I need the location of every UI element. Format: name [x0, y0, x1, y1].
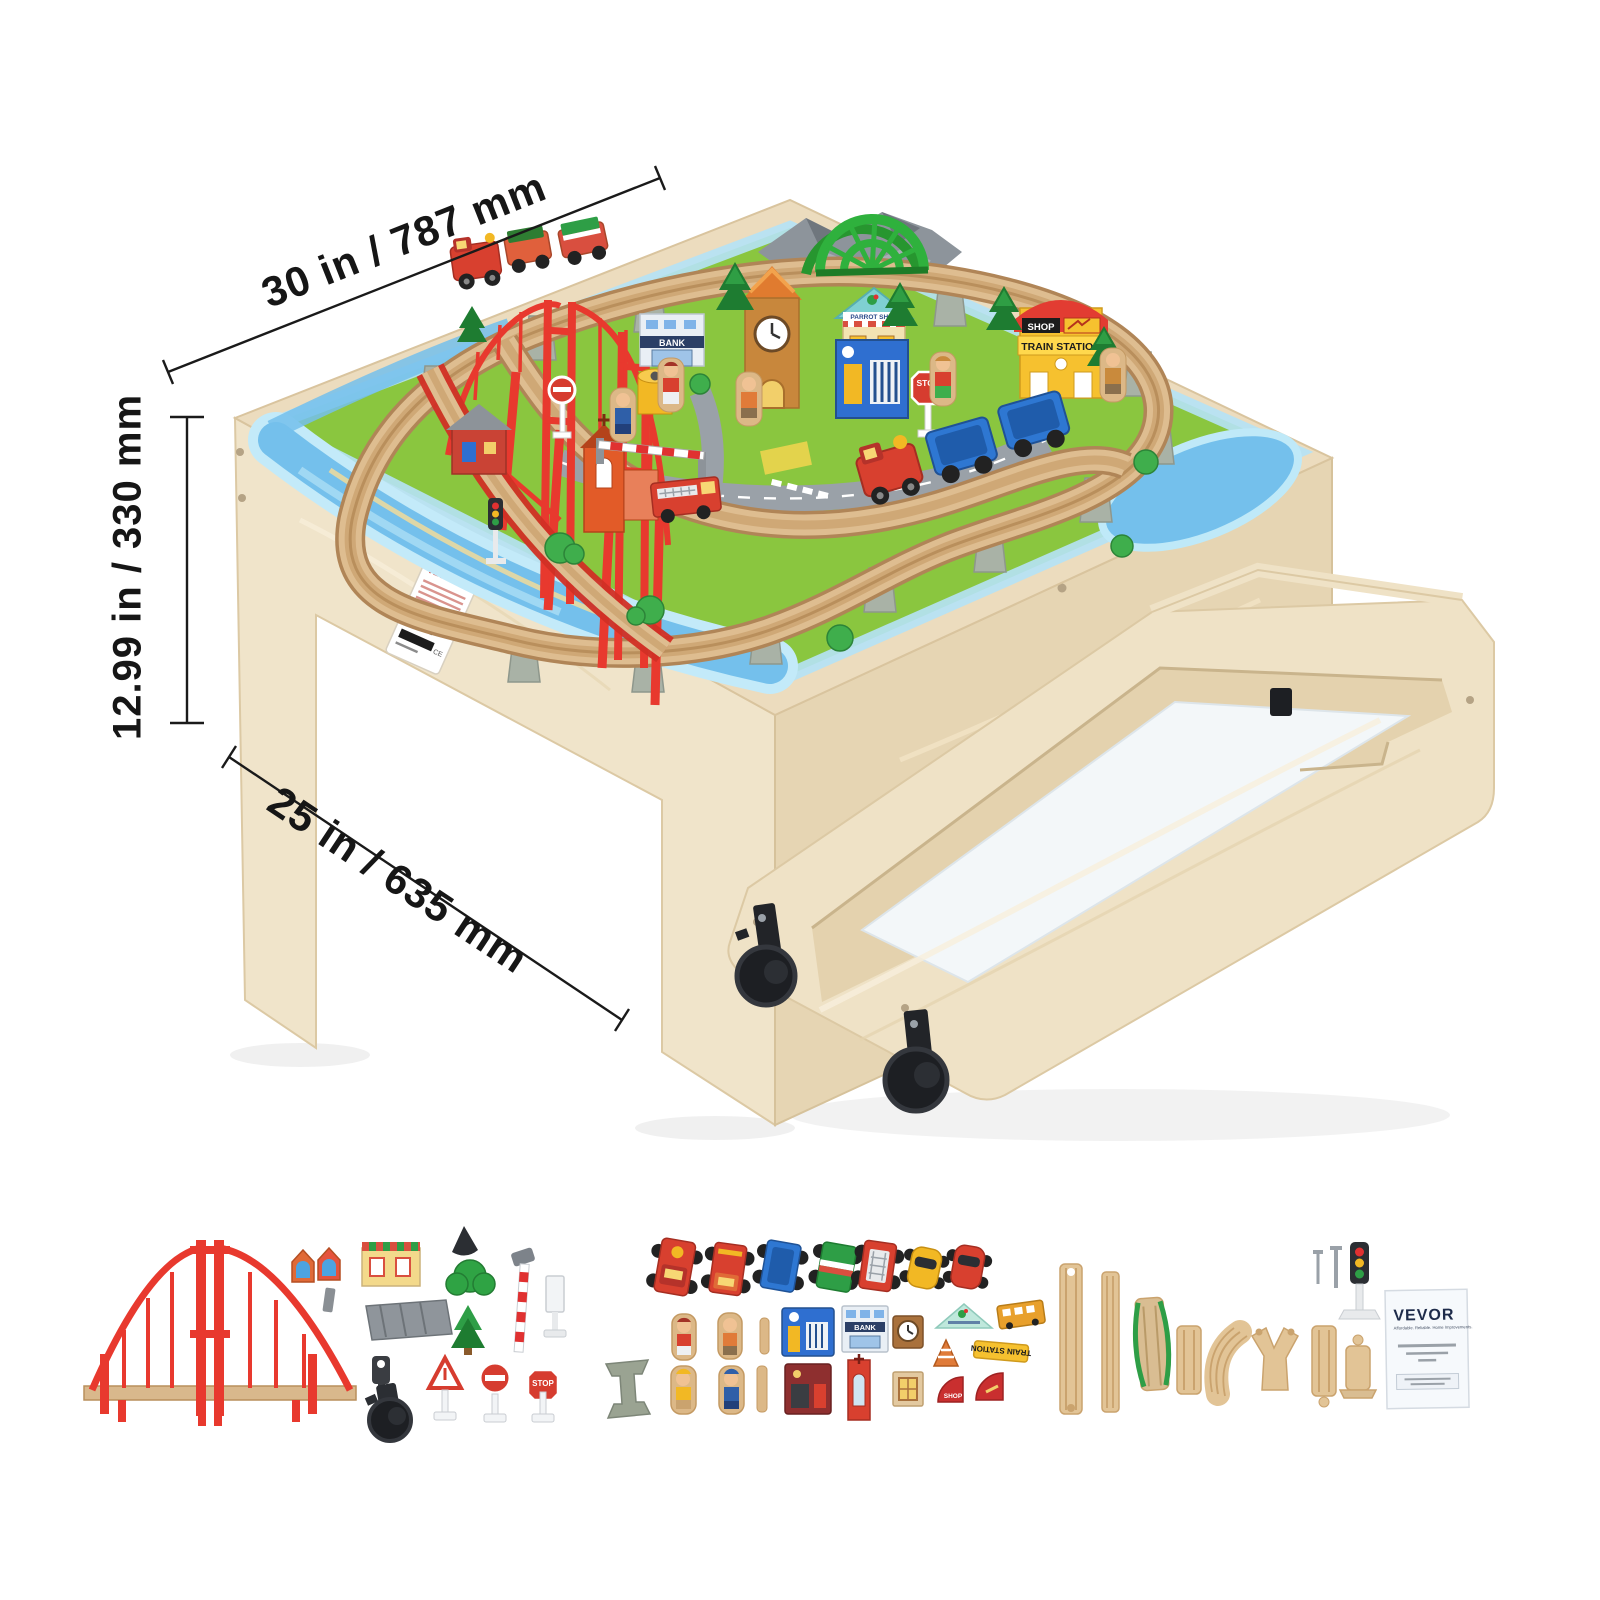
- accessory-parrot-shop-sign: [936, 1304, 992, 1328]
- accessory-church-tile: [848, 1354, 870, 1420]
- accessory-wood-peg: [757, 1366, 767, 1412]
- bank-text: BANK: [659, 338, 685, 348]
- accessory-trestle: [606, 1360, 650, 1418]
- accessory-pine-tree: [451, 1305, 485, 1355]
- accessory-y-switch-track: [1252, 1328, 1298, 1390]
- accessory-traffic-cone: [934, 1340, 958, 1366]
- wagon-orange: [503, 224, 554, 274]
- accessory-figure-man: [718, 1313, 742, 1359]
- accessory-road-sign-white: [544, 1276, 566, 1337]
- accessory-police-station-tile: [782, 1308, 834, 1356]
- accessory-figure-woman: [672, 1314, 696, 1360]
- height-dimension-label: 12.99 in / 330 mm: [106, 394, 151, 740]
- accessory-ramp-track: [1340, 1335, 1376, 1398]
- accessory-curved-track: [1210, 1328, 1247, 1396]
- accessory-straight-tracks: [1060, 1264, 1119, 1414]
- accessory-platform: [366, 1300, 452, 1340]
- accessory-fire-truck: [850, 1239, 906, 1293]
- screw: [238, 494, 246, 502]
- accessory-wood-peg: [760, 1318, 769, 1354]
- accessory-stop-text: STOP: [532, 1379, 554, 1388]
- accessory-instruction-manual: VEVOR Affordable. Reliable. Home Improve…: [1385, 1289, 1474, 1408]
- product-dimension-image: VEVOR CE: [0, 0, 1600, 1600]
- accessory-red-car: [942, 1242, 995, 1291]
- accessory-clock-tile: [893, 1316, 923, 1348]
- accessory-window-tile: [893, 1372, 923, 1406]
- accessory-school-bus-tile: [997, 1300, 1046, 1331]
- accessory-stop-sign: STOP: [528, 1370, 558, 1422]
- accessory-warning-sign: [429, 1358, 461, 1420]
- accessory-no-entry-sign: [480, 1363, 510, 1422]
- wagon-green: [556, 215, 610, 267]
- shop-text: SHOP: [1028, 322, 1056, 333]
- shop-tile-text: SHOP: [944, 1393, 963, 1400]
- accessory-caster-wheel: [365, 1382, 411, 1441]
- accessory-figure-builder: [671, 1366, 696, 1414]
- accessory-freight-truck: [700, 1241, 756, 1297]
- screw: [236, 448, 244, 456]
- accessory-blue-wagon: [751, 1238, 811, 1294]
- accessory-short-track-2: [1312, 1326, 1336, 1407]
- police-station: [836, 340, 908, 418]
- train-station-text: TRAIN STATION: [1021, 341, 1101, 353]
- accessory-yellow-car: [898, 1244, 951, 1293]
- bank-tile-text: BANK: [854, 1323, 876, 1332]
- accessory-shop-corner-tile: SHOP: [938, 1373, 1003, 1402]
- accessory-figure-policeman: [719, 1366, 744, 1414]
- accessory-crossing-signal: [510, 1247, 535, 1352]
- included-accessories: STOP: [84, 1226, 1474, 1441]
- manual-brand: VEVOR: [1393, 1307, 1454, 1325]
- accessory-tunnel-cone: [452, 1226, 478, 1256]
- accessory-shop-building: [362, 1242, 420, 1286]
- product-artwork: VEVOR CE: [0, 0, 1600, 1600]
- accessory-traffic-light: [1339, 1242, 1380, 1319]
- screw: [1466, 696, 1474, 704]
- screw: [901, 1004, 909, 1012]
- accessory-green-wagon: [807, 1240, 864, 1294]
- accessory-screws: [1313, 1246, 1342, 1288]
- accessory-bush: [446, 1260, 495, 1295]
- accessory-fire-station-tile: [785, 1364, 831, 1414]
- accessory-climbing-track: [1133, 1297, 1172, 1391]
- accessory-bank-tile: BANK: [842, 1306, 888, 1352]
- accessory-suspension-bridge: [84, 1240, 356, 1426]
- accessory-short-track: [1177, 1326, 1201, 1394]
- accessory-train-engine: [645, 1236, 706, 1298]
- accessory-train-station-sign: TRAIN STATION: [970, 1340, 1032, 1362]
- inner-caster-bracket: [1270, 688, 1292, 716]
